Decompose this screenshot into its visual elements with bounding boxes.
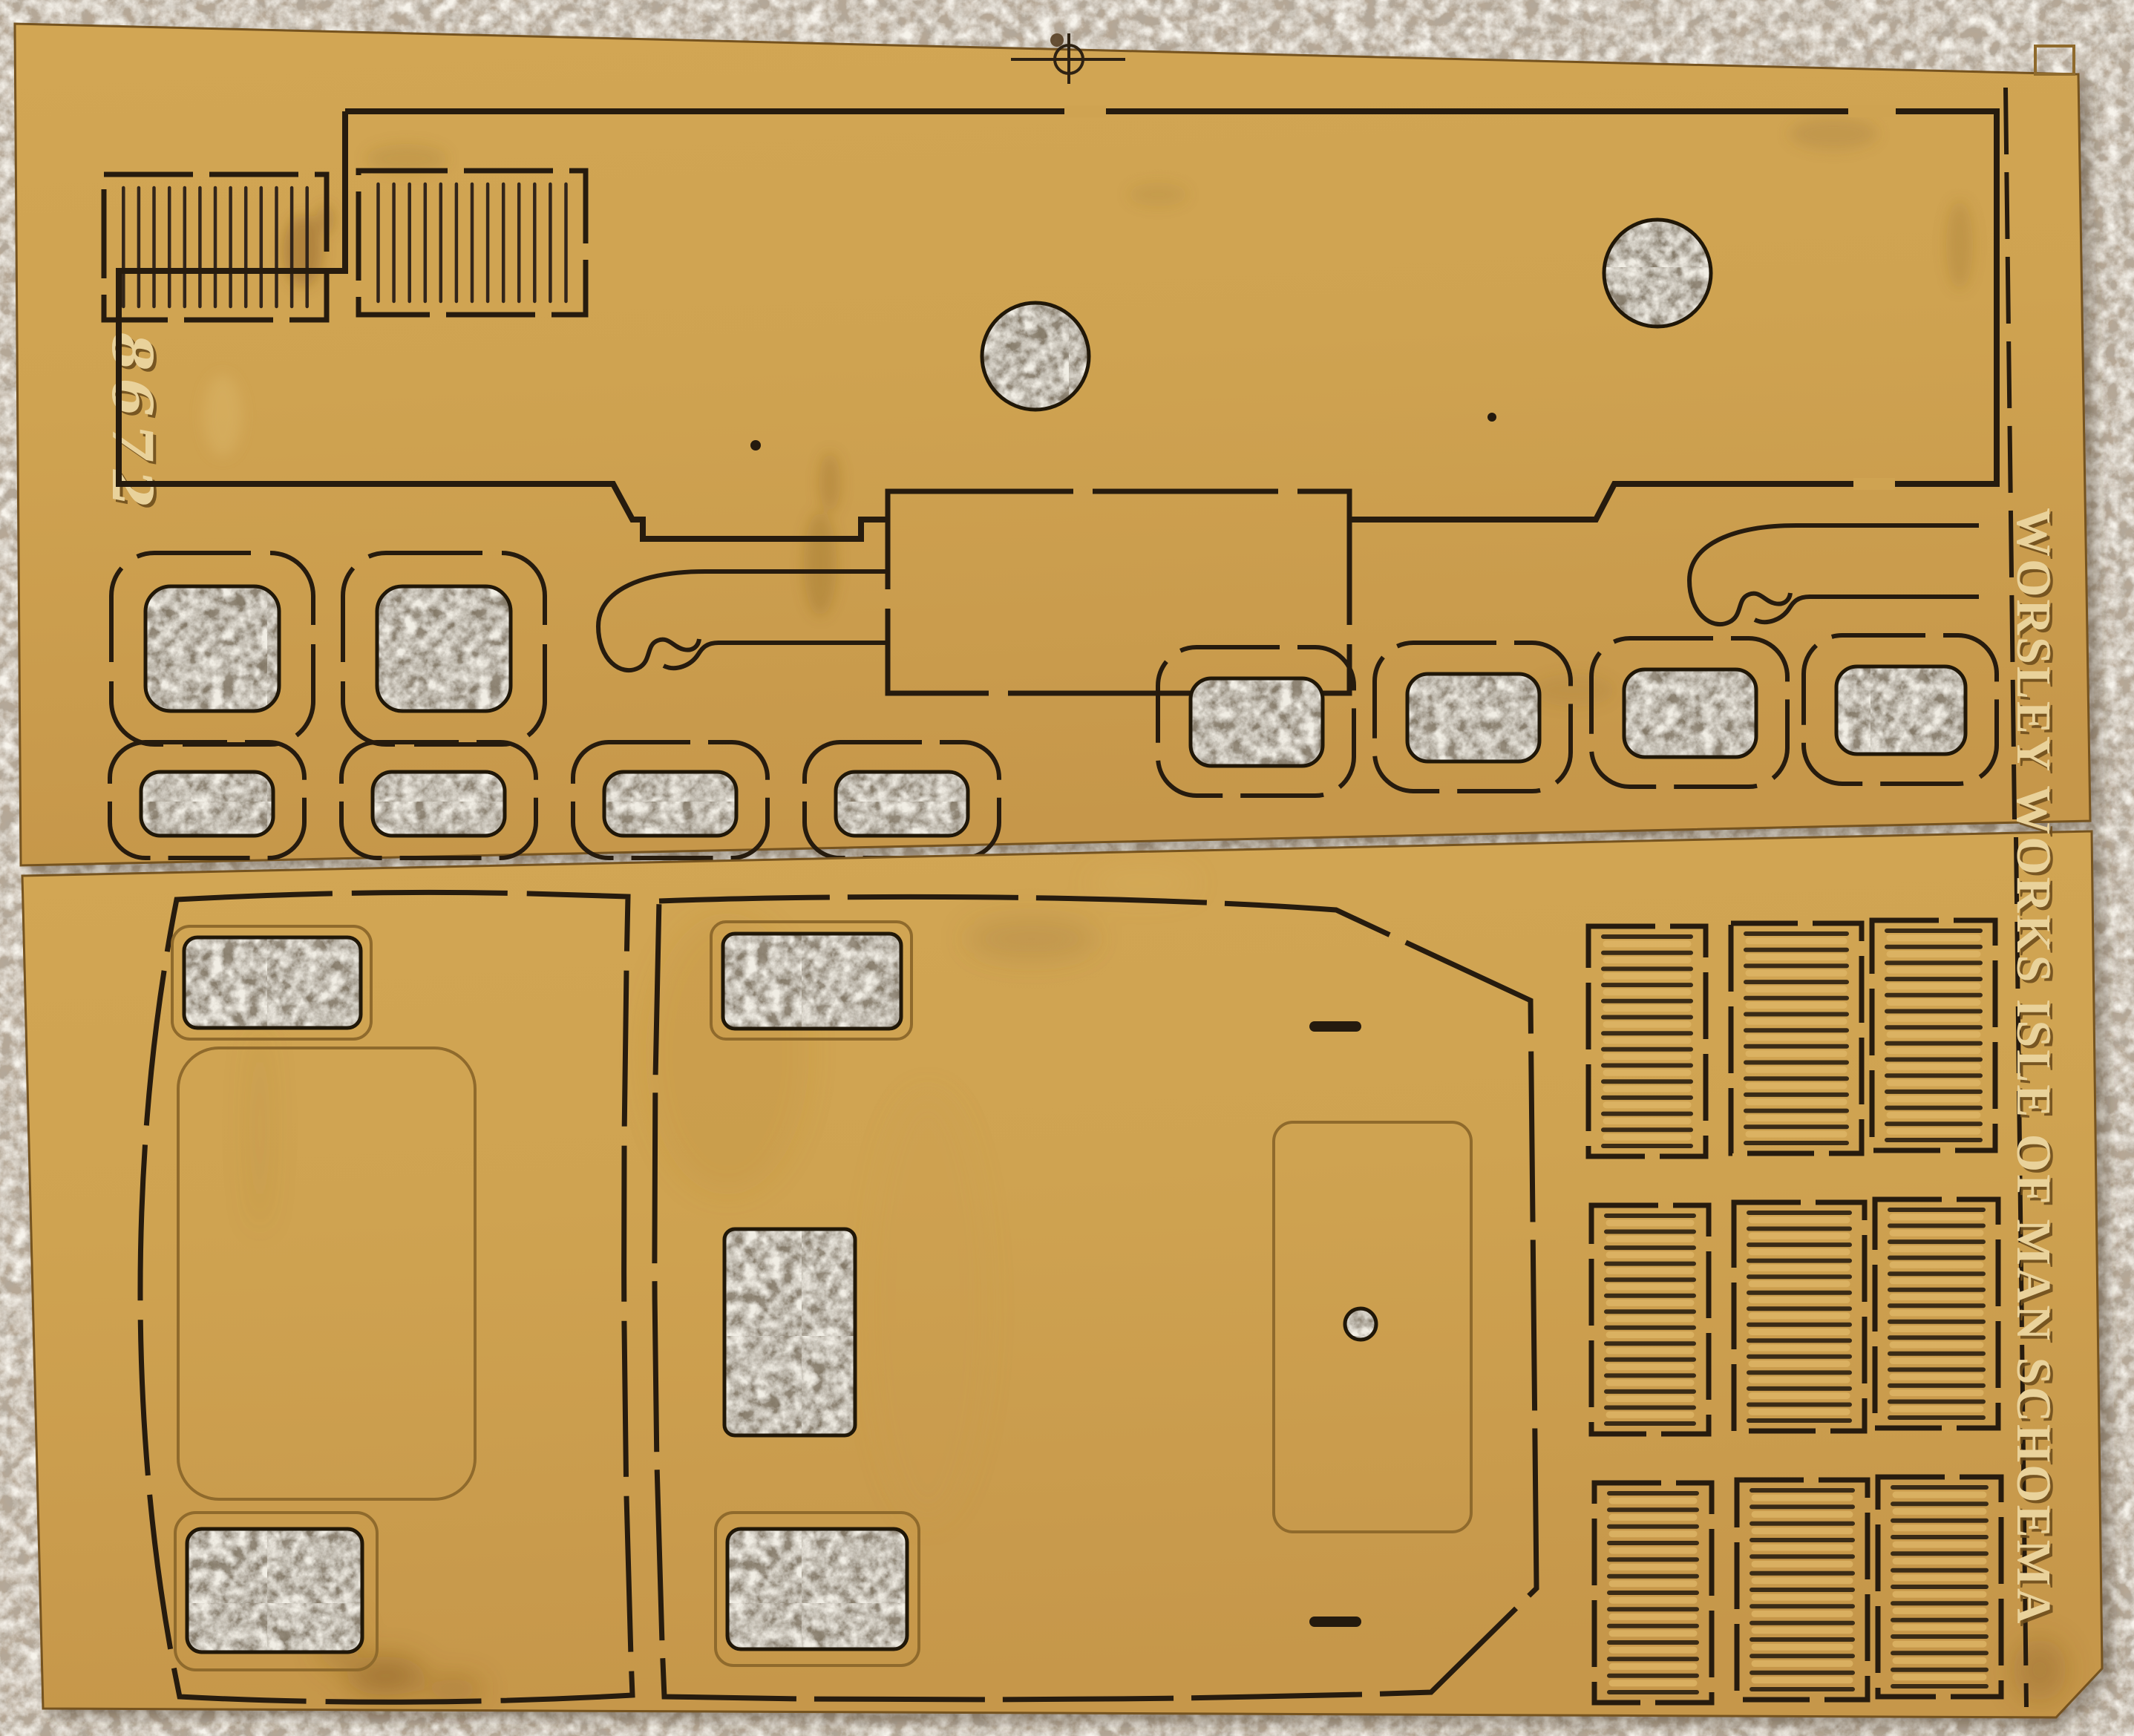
louvre-slats bbox=[1749, 941, 1844, 1134]
window-opening bbox=[187, 1529, 362, 1652]
round-hole-left bbox=[982, 303, 1089, 410]
etched-maker-text: WORSLEY WORKS ISLE OF MAN SCHOEMA WORSLE… bbox=[2006, 508, 2063, 1629]
louvre-slats bbox=[1893, 1217, 1980, 1409]
lower-fret-sheet bbox=[22, 831, 2102, 1717]
handle-hole bbox=[1345, 1308, 1376, 1340]
window-opening bbox=[727, 1529, 907, 1649]
etched-text: WORSLEY WORKS ISLE OF MAN SCHOEMA bbox=[2006, 508, 2061, 1626]
pin-hole-left bbox=[750, 440, 761, 451]
window-opening bbox=[723, 934, 901, 1029]
handwritten-part-number: 8672 8672 bbox=[99, 332, 166, 518]
louvre-panel-top-1 bbox=[104, 174, 327, 320]
ink-blot bbox=[1050, 33, 1064, 47]
louvre-slats bbox=[1752, 1220, 1847, 1412]
upper-sheet-metal bbox=[15, 24, 2090, 865]
louvre-slats bbox=[1890, 938, 1977, 1131]
window-opening bbox=[184, 937, 361, 1028]
upper-fret-sheet: 8672 8672 bbox=[15, 24, 2090, 865]
louvre-slats bbox=[1609, 1223, 1691, 1415]
louvre-panel-top-2 bbox=[359, 171, 586, 315]
tab-bridge bbox=[1064, 105, 1106, 117]
part-number-text: 8672 bbox=[99, 332, 163, 515]
hatch-opening bbox=[724, 1229, 855, 1435]
slot-cutout bbox=[1309, 1021, 1361, 1032]
round-hole-right bbox=[1604, 220, 1711, 327]
slot-cutout bbox=[1309, 1617, 1361, 1627]
photo-of-etched-fret: 8672 8672 bbox=[0, 0, 2134, 1736]
tab-bridge bbox=[1853, 478, 1895, 490]
tab-bridge bbox=[1848, 105, 1896, 117]
pin-hole-right bbox=[1487, 413, 1496, 422]
louvre-slats bbox=[1606, 944, 1688, 1137]
